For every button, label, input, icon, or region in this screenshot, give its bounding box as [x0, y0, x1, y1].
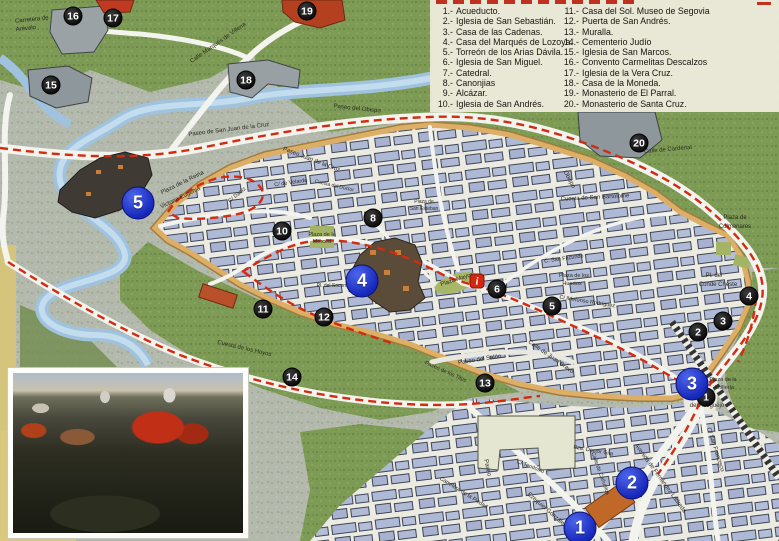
legend-item-2: 2.-Iglesia de San Sebastián.: [436, 16, 562, 26]
legend-item-5: 5.-Torreón de los Arias Dávila.: [436, 47, 562, 57]
city-panorama-photo: [13, 373, 243, 533]
street-label: Plaza de la: [709, 377, 737, 383]
street-label: Huertos: [562, 281, 582, 287]
street-label: Plaza: [694, 395, 710, 401]
street-label: Plaza de: [723, 215, 747, 221]
legend-item-10: 10.-Iglesia de San Andrés.: [436, 99, 562, 109]
legend-column-right: 11.-Casa del Sol. Museo de Segovia12.-Pu…: [562, 6, 779, 112]
street-label: Merced: [313, 239, 331, 245]
legend-item-14: 14.-Cementerio Judío: [562, 37, 779, 47]
legend-item-20: 20.-Monasterio de Santa Cruz.: [562, 99, 779, 109]
street-label: Plaza de la: [308, 232, 336, 238]
legend-item-15: 15.-Iglesia de San Marcos.: [562, 47, 779, 57]
street-label: del Azoguejo: [690, 403, 725, 409]
legend-column-left: 1.-Acueducto.2.-Iglesia de San Sebastián…: [436, 6, 562, 112]
street-label: Pl. del Socorro: [317, 283, 350, 289]
street-label: Conde Cheste: [699, 282, 738, 288]
street-label: Pl. del: [706, 273, 723, 279]
street-label: Plaza de los: [559, 273, 589, 279]
legend-item-9: 9.-Alcázar.: [436, 88, 562, 98]
legend-item-3: 3.-Casa de las Cadenas.: [436, 27, 562, 37]
legend-item-19: 19.-Monasterio de El Parral.: [562, 88, 779, 98]
segovia-tourist-map: { "legend": { "items_left": [ {"n":"1","…: [0, 0, 779, 541]
legend-item-17: 17.-Iglesia de la Vera Cruz.: [562, 68, 779, 78]
street-label: Colmenares: [719, 224, 751, 230]
legend-item-13: 13.-Muralla.: [562, 27, 779, 37]
street-label: San Esteban: [410, 206, 439, 212]
legend-item-4: 4.-Casa del Marqués de Lozoya.: [436, 37, 562, 47]
legend-item-12: 12.-Puerta de San Andrés.: [562, 16, 779, 26]
legend-item-1: 1.-Acueducto.: [436, 6, 562, 16]
street-label: Plaza de: [414, 199, 434, 205]
legend-item-7: 7.-Catedral.: [436, 68, 562, 78]
street-label: Artillería: [714, 385, 735, 391]
inset-photo-frame: [8, 368, 248, 538]
legend-item-18: 18.-Casa de la Moneda.: [562, 78, 779, 88]
legend-item-16: 16.-Convento Carmelitas Descalzos: [562, 57, 779, 67]
legend-item-6: 6.-Iglesia de San Miguel.: [436, 57, 562, 67]
legend-title-clipped: [436, 0, 636, 4]
legend-title-clipped-mark: [757, 2, 771, 5]
artilleria-dot: [696, 381, 703, 388]
plaza-colmenares: [716, 242, 731, 255]
legend-item-11: 11.-Casa del Sol. Museo de Segovia: [562, 6, 779, 16]
legend-panel: 1.-Acueducto.2.-Iglesia de San Sebastián…: [430, 0, 779, 112]
legend-item-8: 8.-Canonjias: [436, 78, 562, 88]
